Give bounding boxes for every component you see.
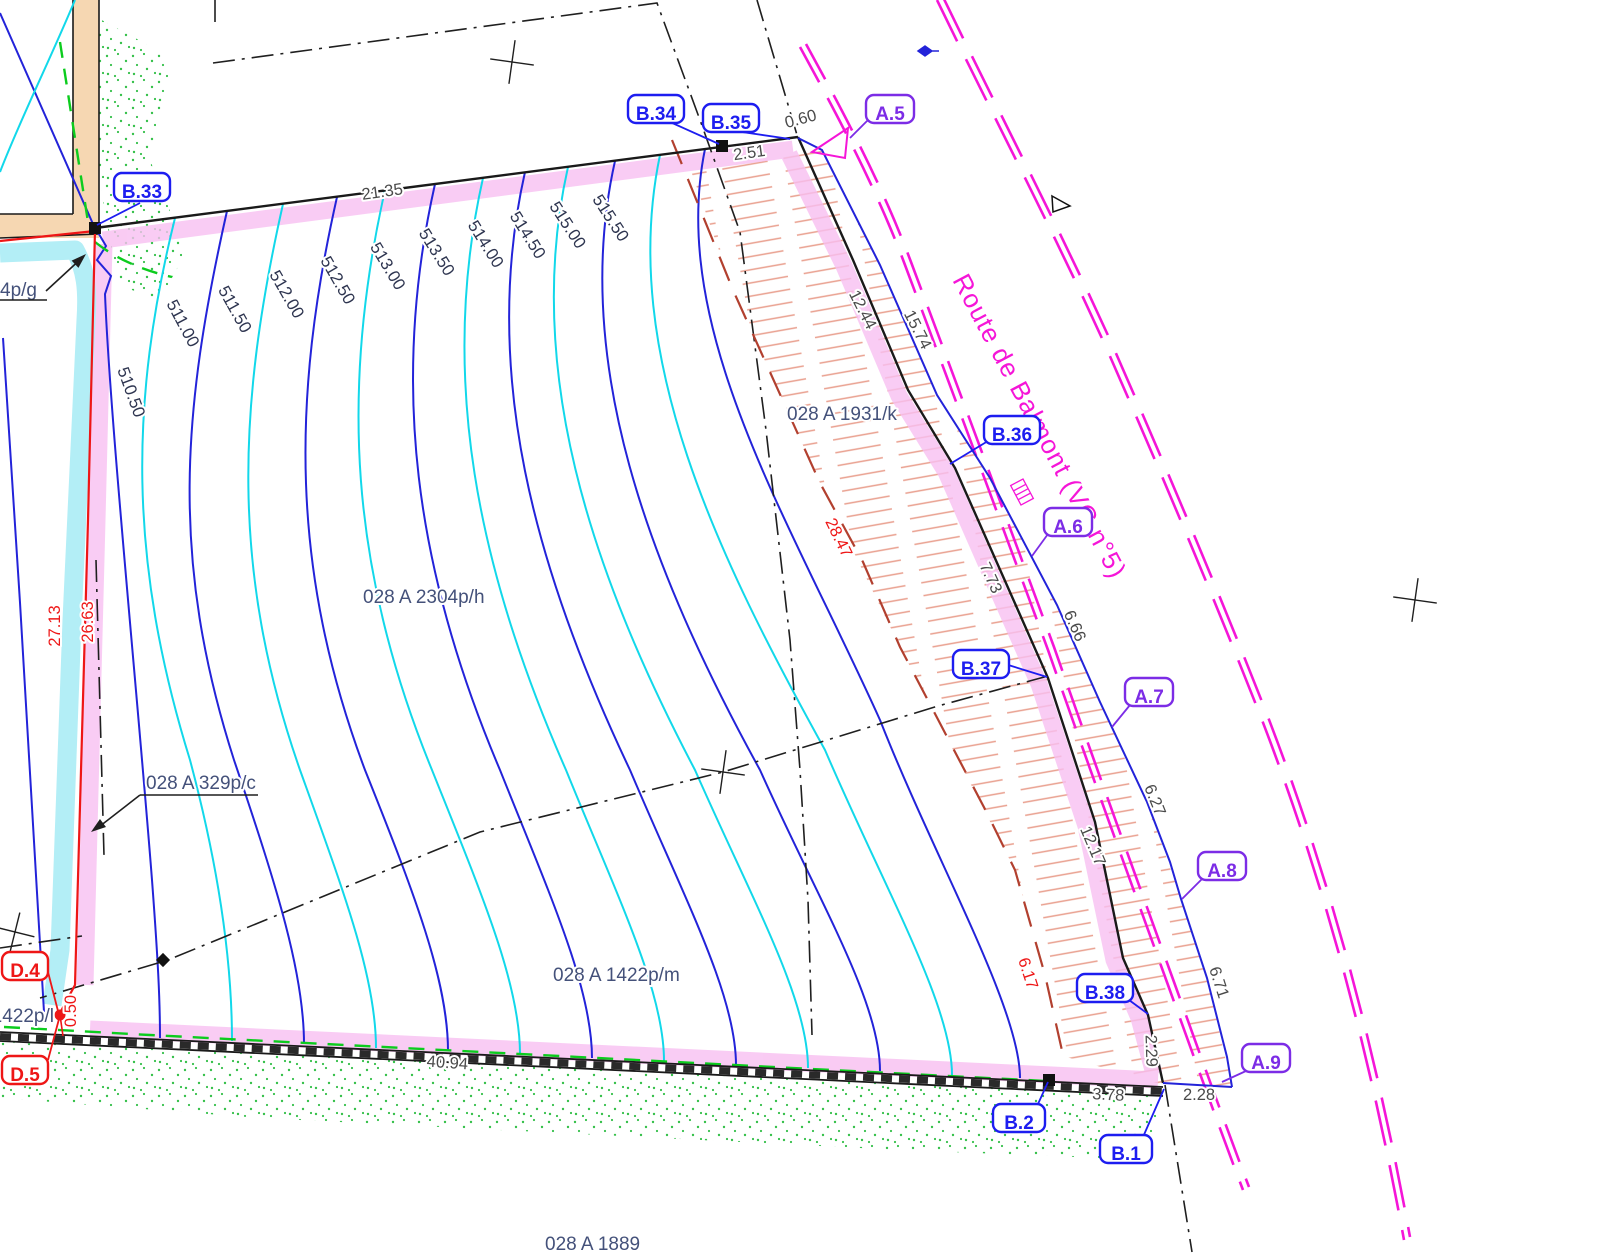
building-wall-vertical [73,0,99,232]
contour-label-513-00: 513.00 [366,239,409,293]
contour-line-514-00 [509,172,736,1065]
culvert-icon [1011,479,1034,505]
svg-text:D.4: D.4 [10,961,40,982]
svg-text:D.5: D.5 [10,1065,40,1086]
measure-2-28: 2.28 [1183,1086,1215,1104]
contour-line-512-50 [358,190,520,1054]
cyan-utility-band [0,250,87,1005]
svg-text:B.2: B.2 [1004,1113,1034,1134]
parcel-label-1931: 028 A 1931/k [787,404,897,425]
point-label-b35: B.35 [703,104,790,139]
contour-label-515-50: 515.50 [588,191,632,245]
contour-label-510-50: 510.50 [113,364,149,419]
svg-text:A.5: A.5 [875,104,905,125]
parcel-label-4pg: 4p/g [0,280,37,301]
grid-cross-1 [487,37,537,87]
svg-text:B.1: B.1 [1111,1144,1141,1165]
contour-line-offsite-west-blue [3,338,44,1012]
a5-arrow-icon [812,128,848,158]
point-label-a8: A.8 [1182,852,1246,899]
svg-text:B.36: B.36 [992,425,1032,446]
svg-text:A.7: A.7 [1134,687,1164,708]
measure-26-63: 26.63 [79,601,97,642]
svg-text:A.9: A.9 [1251,1053,1281,1074]
contour-label-515-00: 515.00 [545,198,589,252]
point-label-a7: A.7 [1112,678,1173,727]
measure-2-29: 2.29 [1141,1034,1160,1067]
svg-text:B.38: B.38 [1085,983,1125,1004]
measure-3-78: 3.78 [1092,1085,1125,1105]
grid-cross-3 [698,747,748,797]
svg-text:B.33: B.33 [122,182,162,203]
svg-text:B.37: B.37 [961,659,1001,680]
marker-square-b2 [1043,1074,1055,1086]
contour-line-511-00 [190,211,304,1044]
boundary-top [95,137,798,228]
contour-label-511-00: 511.00 [163,297,204,351]
measure-6-17: 6.17 [1014,955,1041,991]
contour-label-512-50: 512.50 [317,253,359,308]
marker-square-b34 [716,140,728,152]
dashdot-b1-south [1165,1085,1192,1252]
contour-label-512-00: 512.00 [266,267,308,322]
grid-cross-2 [1390,575,1440,625]
contour-label-511-50: 511.50 [214,283,255,337]
parcel-label-1422l: 1422p/l [0,1006,54,1027]
contour-line-512-00 [305,197,448,1051]
pink-band-top [103,149,793,240]
parcel-label-1422m: 028 A 1422p/m [553,965,680,986]
contour-line-offsite-west-cyan [0,0,75,172]
north-diamond-icon [918,46,939,56]
point-label-a5: A.5 [850,95,914,138]
dashdot-diagonal [40,676,1048,998]
svg-text:A.8: A.8 [1207,861,1237,882]
measure-0-50: 0.50 [62,995,80,1027]
survey-plan-canvas: 510.50 511.00 511.50 512.00 512.50 513.0… [0,0,1600,1257]
parcel-label-2304: 028 A 2304p/h [363,587,485,608]
measure-0-60: 0.60 [783,106,819,132]
contour-line-513-00 [413,184,592,1058]
point-label-a6: A.6 [1032,508,1092,556]
parcel-329-leader [88,795,258,836]
measure-40-94: 40.94 [426,1053,468,1074]
survey-plan: 510.50 511.00 511.50 512.00 512.50 513.0… [0,0,1600,1257]
point-label-a9: A.9 [1222,1044,1290,1082]
measure-27-13: 27.13 [46,605,64,646]
svg-text:A.6: A.6 [1053,517,1083,538]
contour-line-511-50 [248,204,376,1048]
parcel-label-329: 028 A 329p/c [146,773,256,794]
grid-cross-4 [0,908,39,956]
svg-text:B.34: B.34 [636,104,677,125]
triangle-symbol-icon [1052,196,1070,212]
parcel-label-1889: 028 A 1889 [545,1234,640,1255]
svg-text:B.35: B.35 [711,113,752,134]
